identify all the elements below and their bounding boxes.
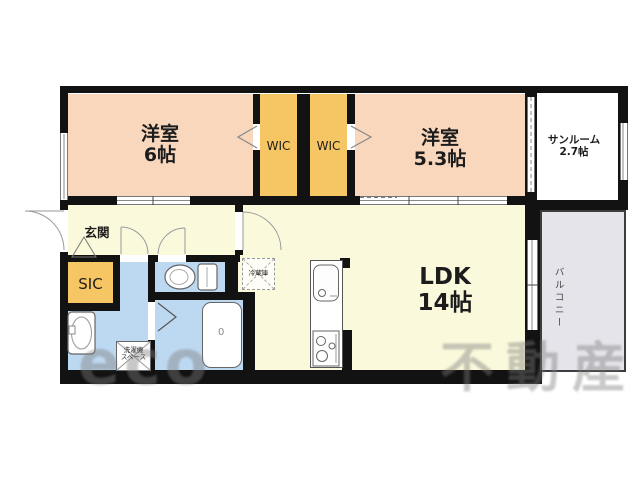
toilet-door-arc <box>158 228 185 254</box>
bath-fold-door-icon <box>158 303 176 331</box>
toilet-icon <box>165 264 217 290</box>
bedroom53-size: 5.3帖 <box>414 148 467 170</box>
room-label-wic2: WIC <box>310 140 347 153</box>
entrance-door-arc <box>25 211 64 250</box>
sunroom-name: サンルーム <box>548 134 600 146</box>
laundry-label: 洗濯機 スペース <box>116 347 151 362</box>
wic1-chevron-icon <box>238 126 257 148</box>
fixtures-overlay <box>0 0 640 480</box>
room-label-bedroom6: 洋室 6帖 <box>110 124 210 167</box>
ldk-size: 14帖 <box>417 290 472 316</box>
kitchen-sink-icon <box>314 265 339 301</box>
room-label-sunroom: サンルーム 2.7帖 <box>530 135 618 159</box>
fridge-label: 冷蔵庫 <box>242 270 275 277</box>
washroom-door-arc <box>121 227 148 254</box>
bedroom53-name: 洋室 <box>421 127 459 149</box>
floorplan-canvas: 0 <box>0 0 640 480</box>
room-label-ldk: LDK 14帖 <box>395 265 495 317</box>
room-label-balcony: バルコニー <box>552 248 563 348</box>
bedroom6-size: 6帖 <box>144 144 176 166</box>
ldk-door-arc <box>243 212 281 250</box>
bedroom6-name: 洋室 <box>141 123 179 145</box>
washbasin-icon <box>68 312 95 354</box>
kitchen-stove-icon <box>313 331 339 366</box>
room-label-entrance: 玄関 <box>75 226 119 240</box>
sunroom-size: 2.7帖 <box>559 146 588 158</box>
laundry-line2: スペース <box>121 353 146 361</box>
genkan-step-triangle <box>72 237 96 257</box>
ldk-name: LDK <box>419 264 471 290</box>
wic2-chevron-icon <box>351 126 371 148</box>
room-label-sic: SIC <box>68 276 113 293</box>
room-label-wic1: WIC <box>260 140 297 153</box>
room-label-bedroom53: 洋室 5.3帖 <box>390 128 490 171</box>
